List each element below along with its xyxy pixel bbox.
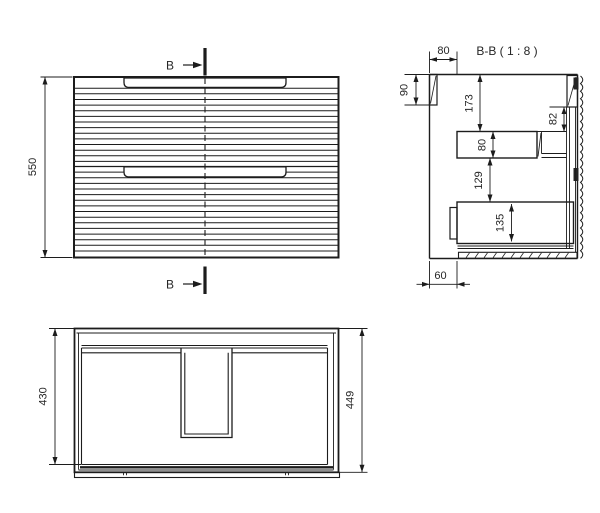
dim-80-top-label: 80: [437, 45, 449, 57]
dimension-82: 82: [548, 107, 568, 132]
dim-80-drawer-arrow-top: [491, 132, 496, 140]
dim-430-label: 430: [38, 387, 50, 405]
section-arrow-top: [193, 62, 203, 68]
dim-80-top-arrow-left: [430, 57, 438, 62]
section-label-bottom: B: [166, 278, 174, 292]
mounting-clip-bottom: [574, 168, 579, 181]
section-arrow-bottom: [193, 281, 203, 287]
dimension-173: 173: [464, 75, 483, 132]
dim-129-arrow-bottom: [488, 195, 493, 203]
mounting-clip-top: [574, 78, 579, 90]
dim-129-label: 129: [473, 171, 485, 189]
dimension-80-drawer: 80: [477, 132, 496, 159]
dim-550-label: 550: [27, 158, 39, 176]
dim-82-arrow-top: [562, 107, 567, 114]
section-view-title: B-B ( 1 : 8 ): [476, 44, 537, 58]
plan-outline: [75, 329, 339, 473]
plan-center-box-inner: [185, 353, 228, 434]
dim-430-arrow-bottom: [53, 457, 58, 465]
dim-80-drawer-arrow-bottom: [491, 151, 496, 159]
wall-break-line: [581, 76, 583, 258]
dim-173-arrow-top: [478, 75, 483, 83]
upper-drawer-box: [457, 132, 537, 159]
cabinet-technical-drawing: B B 550 B-B ( 1 : 8 ): [0, 0, 600, 513]
dim-90-arrow-bottom: [414, 98, 419, 106]
dim-430-arrow-top: [53, 329, 58, 337]
plan-center-box-outer: [181, 349, 232, 438]
upper-drawer-runner: [537, 132, 567, 158]
dim-449-arrow-bottom: [360, 465, 365, 473]
dim-90-label: 90: [399, 84, 411, 96]
front-view: B B 550: [27, 48, 339, 294]
plan-cavity-top-bottom: [82, 353, 328, 465]
section-view: B-B ( 1 : 8 ) 80: [399, 44, 583, 289]
dim-80-top-arrow-right: [450, 57, 458, 62]
dimension-60: 60: [417, 261, 471, 289]
dim-90-arrow-top: [414, 75, 419, 83]
plan-inner-edge-lines: [77, 333, 337, 470]
dim-135-label: 135: [495, 214, 507, 232]
section-label-top: B: [166, 59, 174, 73]
lower-drawer-base-lines: [458, 246, 574, 249]
dim-550-lines: [41, 77, 73, 258]
dim-80-drawer-label: 80: [477, 139, 489, 151]
dim-449-label: 449: [345, 391, 357, 409]
dim-82-label: 82: [548, 113, 560, 125]
lower-drawer-box: [457, 202, 574, 244]
dim-60-arrow-right: [457, 282, 465, 287]
dim-60-arrow-left: [422, 282, 430, 287]
dimension-80-top: 80: [430, 45, 458, 74]
dim-430-lines: [49, 329, 81, 465]
dim-173-arrow-bottom: [478, 124, 483, 132]
plan-view: 430 449: [38, 329, 368, 478]
dim-135-arrow-top: [509, 204, 514, 212]
dim-135-arrow-bottom: [509, 234, 514, 242]
dimension-135: 135: [495, 204, 515, 242]
dim-60-label: 60: [434, 270, 446, 282]
technical-drawing-page: B B 550 B-B ( 1 : 8 ): [0, 0, 600, 513]
dimension-129: 129: [473, 158, 493, 202]
lower-drawer-front-edge: [450, 208, 457, 240]
front-top-rail-hatch: [431, 76, 437, 104]
dim-129-arrow-top: [488, 158, 493, 166]
plan-cavity-sides: [82, 348, 328, 465]
dimension-550: 550: [27, 77, 73, 258]
plinth-hatch: [466, 253, 569, 258]
dim-82-arrow-bottom: [562, 125, 567, 132]
dim-550-arrow-top: [43, 77, 48, 85]
dim-173-label: 173: [464, 94, 476, 112]
dimension-449: 449: [339, 329, 368, 473]
dim-449-arrow-top: [360, 329, 365, 337]
dim-550-arrow-bottom: [43, 250, 48, 258]
